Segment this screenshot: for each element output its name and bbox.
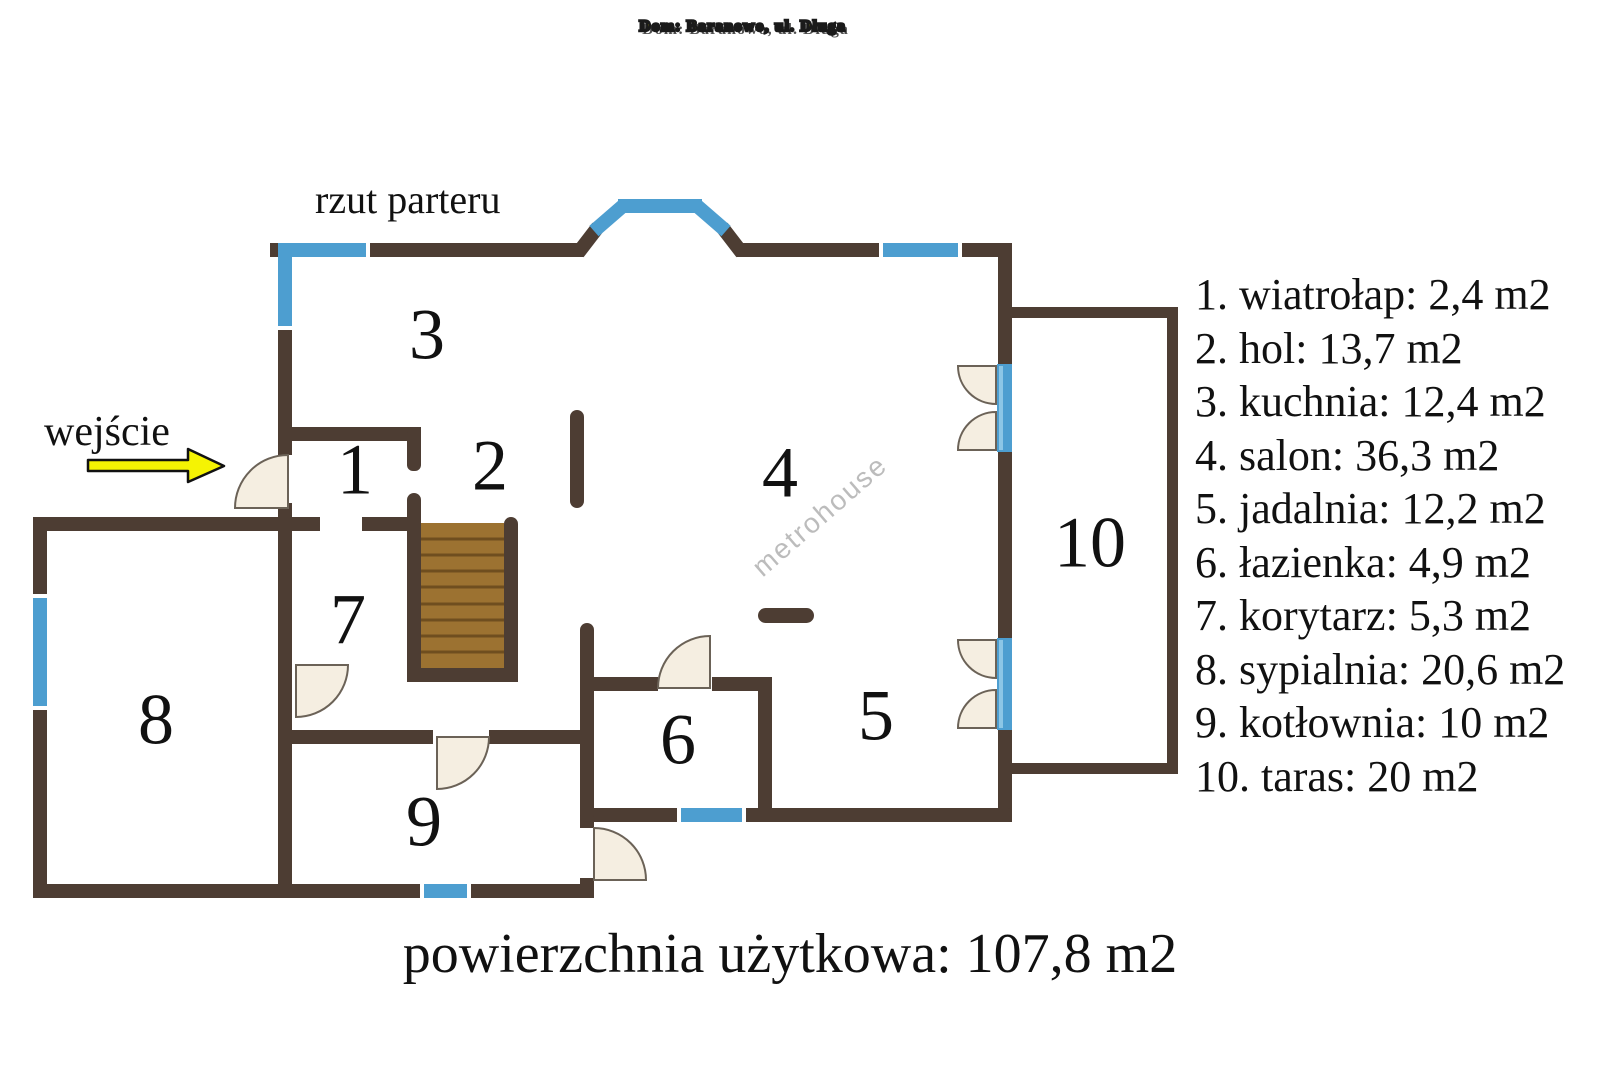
room-label-3: 3: [409, 294, 445, 377]
legend-item: 3. kuchnia: 12,4 m2: [1195, 375, 1565, 429]
door-bathroom-icon: [658, 636, 710, 688]
legend-item: 1. wiatrołap: 2,4 m2: [1195, 268, 1565, 322]
legend-item: 4. salon: 36,3 m2: [1195, 429, 1565, 483]
room-legend: 1. wiatrołap: 2,4 m2 2. hol: 13,7 m2 3. …: [1195, 268, 1565, 803]
door-boiler-exterior-icon: [594, 828, 646, 880]
staircase-icon: [421, 523, 504, 668]
exterior-walls: [33, 243, 1012, 898]
french-door-bottom-icon: [958, 638, 1012, 730]
bay-window-icon: [578, 205, 742, 253]
entrance-door-icon: [235, 455, 288, 508]
door-corridor-boiler-icon: [437, 737, 489, 789]
page-title: Dom: Baranowo, ul. Długa: [60, 18, 1425, 36]
legend-item: 7. korytarz: 5,3 m2: [1195, 589, 1565, 643]
legend-item: 2. hol: 13,7 m2: [1195, 322, 1565, 376]
legend-item: 6. łazienka: 4,9 m2: [1195, 536, 1565, 590]
room-label-5: 5: [858, 675, 894, 758]
legend-item: 10. taras: 20 m2: [1195, 750, 1565, 804]
room-label-7: 7: [330, 579, 366, 662]
legend-item: 9. kotłownia: 10 m2: [1195, 696, 1565, 750]
floorplan-page: Dom: Baranowo, ul. Długa rzut parteru we…: [0, 0, 1620, 1080]
entrance-label: wejście: [44, 408, 170, 456]
room-label-8: 8: [138, 679, 174, 762]
legend-item: 8. sypialnia: 20,6 m2: [1195, 643, 1565, 697]
room-label-2: 2: [472, 425, 508, 508]
usable-area-text: powierzchnia użytkowa: 107,8 m2: [0, 922, 1580, 986]
door-corridor-bedroom-icon: [296, 665, 348, 717]
legend-item: 5. jadalnia: 12,2 m2: [1195, 482, 1565, 536]
room-label-4: 4: [762, 432, 798, 515]
room-label-10: 10: [1054, 502, 1126, 585]
french-door-top-icon: [958, 364, 1012, 452]
plan-label: rzut parteru: [315, 176, 500, 223]
room-label-9: 9: [406, 781, 442, 864]
room-label-6: 6: [660, 699, 696, 782]
room-label-1: 1: [337, 429, 373, 512]
